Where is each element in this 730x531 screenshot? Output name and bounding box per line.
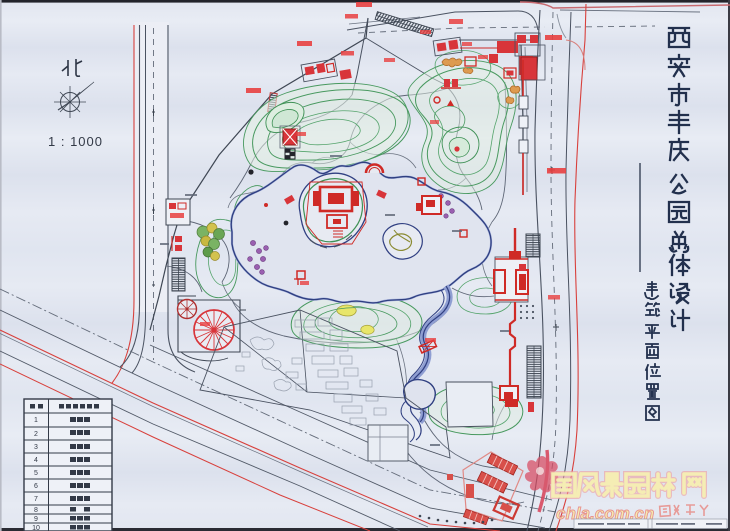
svg-text:1: 1 <box>34 417 38 424</box>
svg-text:6: 6 <box>34 483 38 490</box>
svg-text:10: 10 <box>32 525 40 531</box>
svg-text:4: 4 <box>34 457 38 464</box>
svg-text:7: 7 <box>34 496 38 503</box>
svg-text:1 : 1000: 1 : 1000 <box>48 134 103 149</box>
svg-text:3: 3 <box>34 444 38 451</box>
svg-text:2: 2 <box>34 431 38 438</box>
svg-text:5: 5 <box>34 470 38 477</box>
svg-text:9: 9 <box>34 516 38 523</box>
svg-text:8: 8 <box>34 507 38 514</box>
